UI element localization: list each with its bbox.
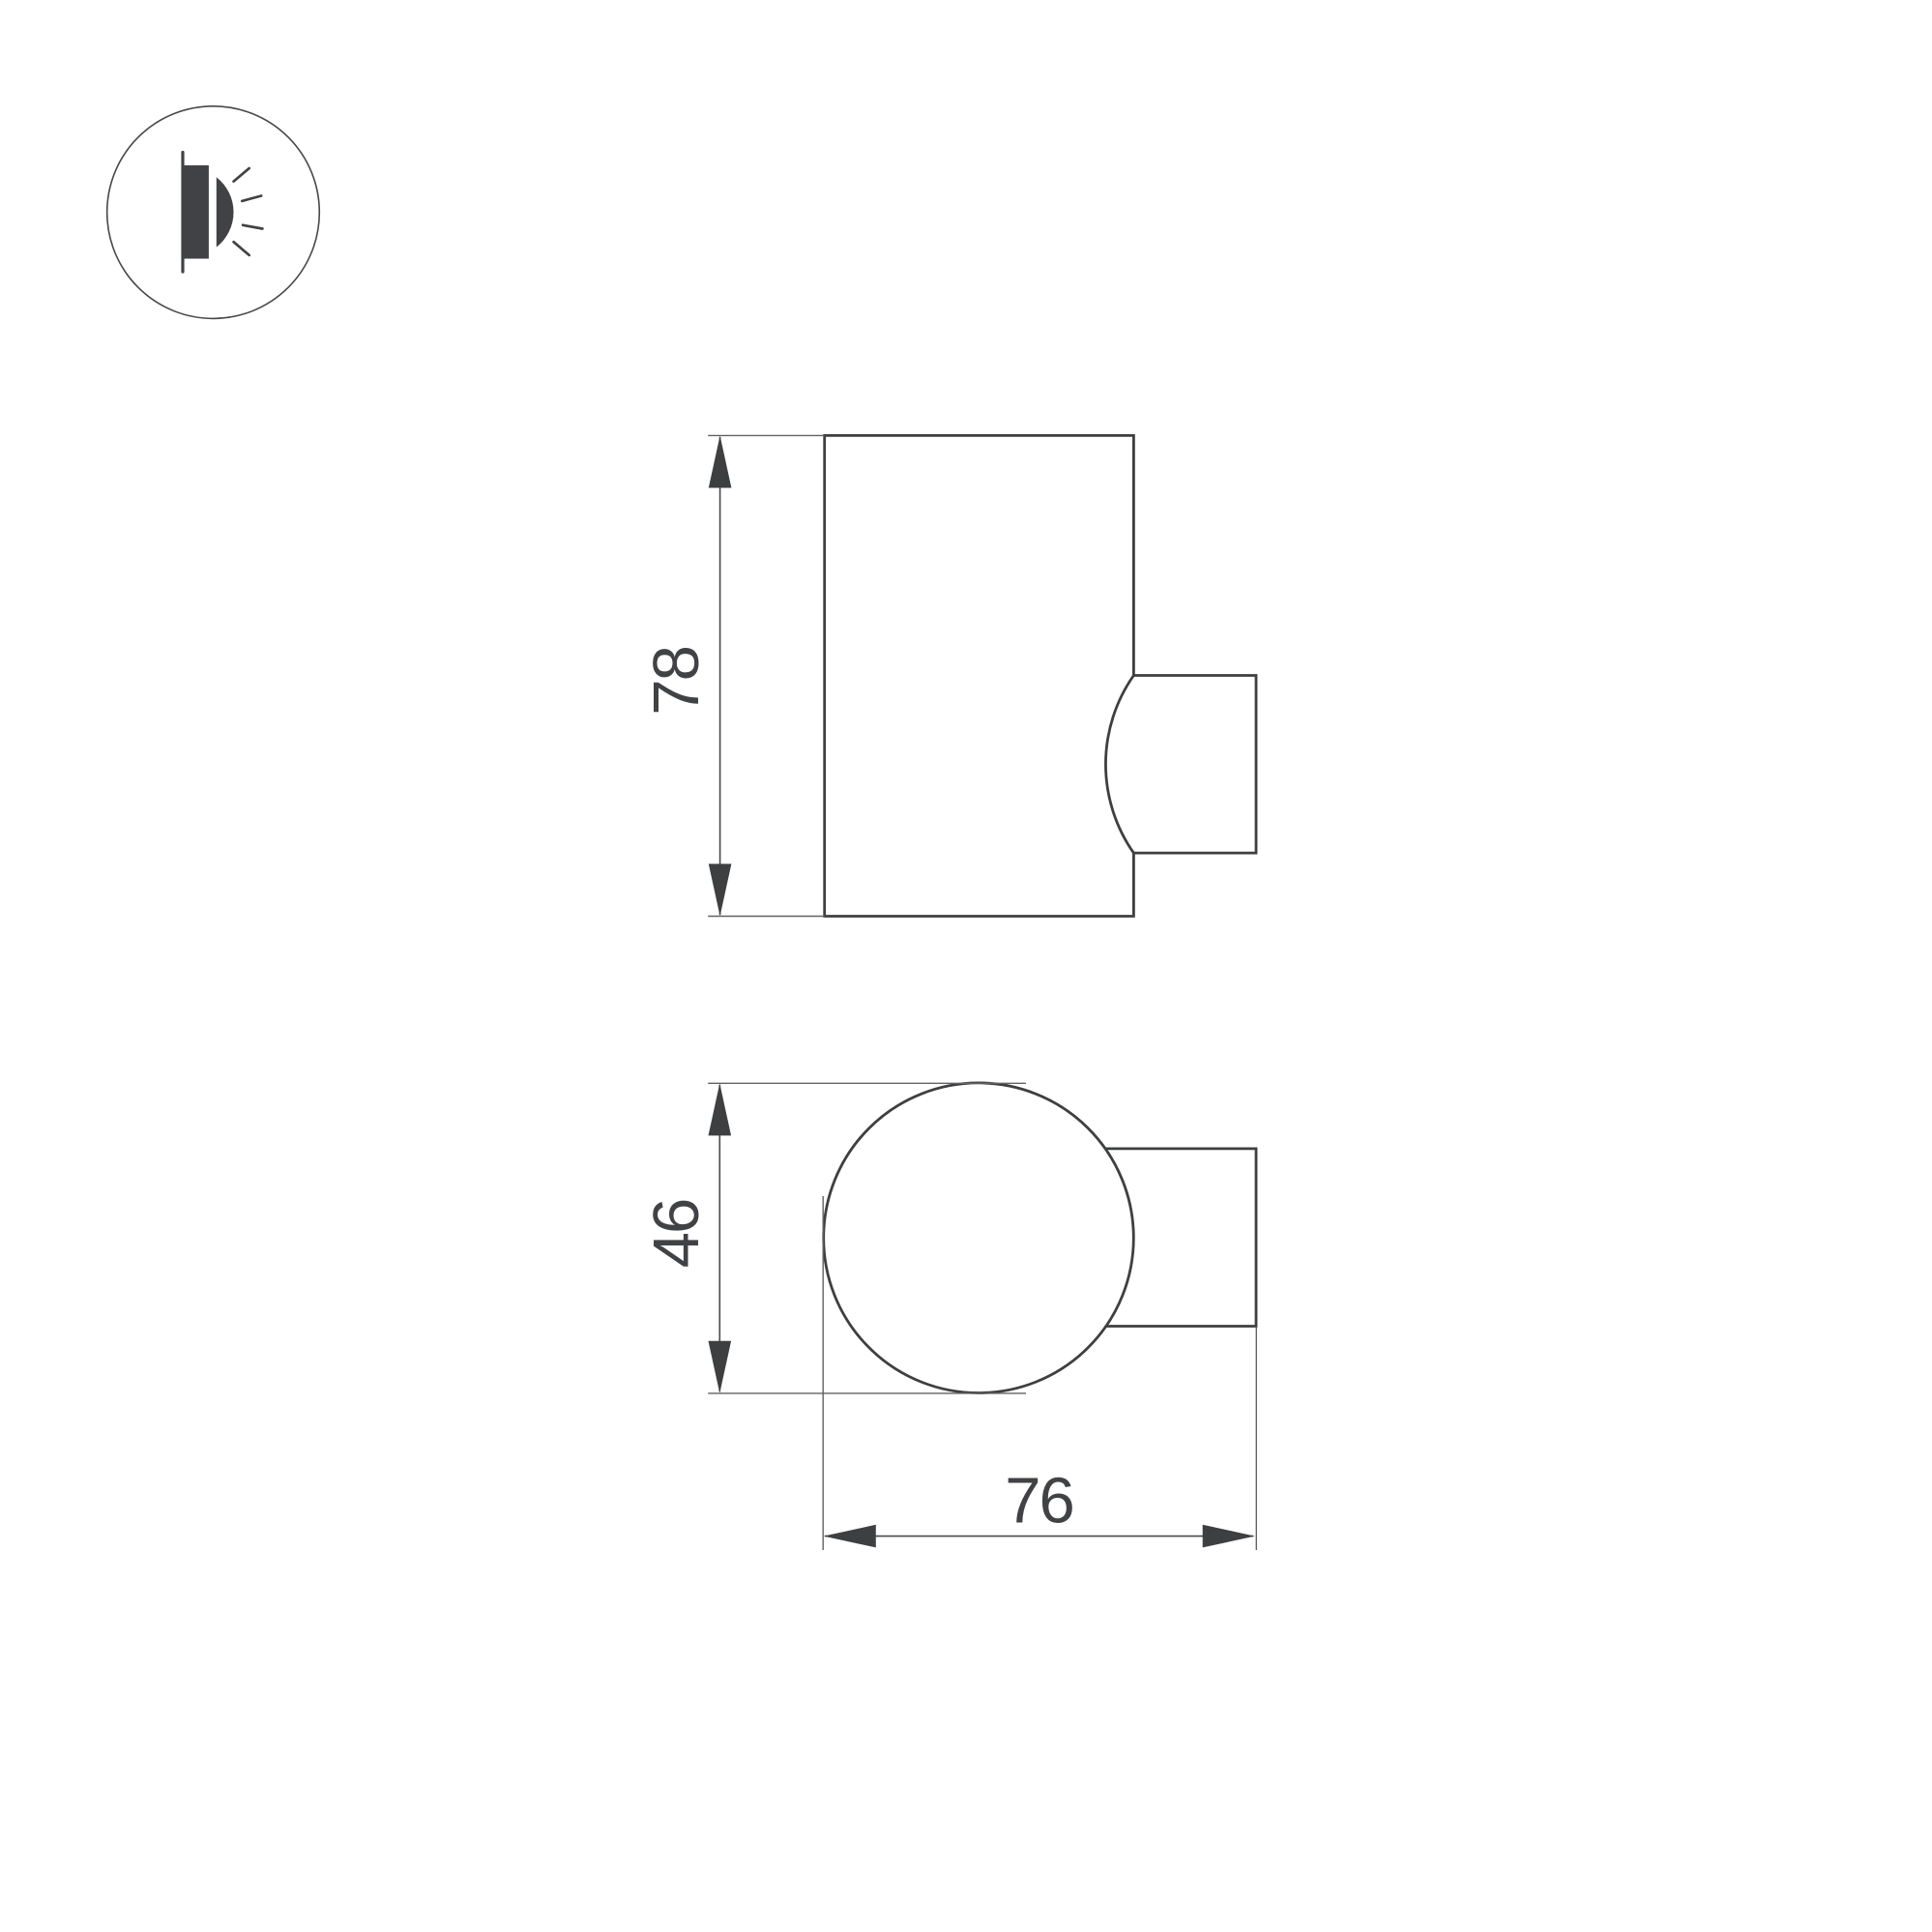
svg-text:78: 78 [640, 647, 713, 716]
svg-text:46: 46 [640, 1200, 713, 1269]
svg-text:76: 76 [1005, 1465, 1073, 1537]
